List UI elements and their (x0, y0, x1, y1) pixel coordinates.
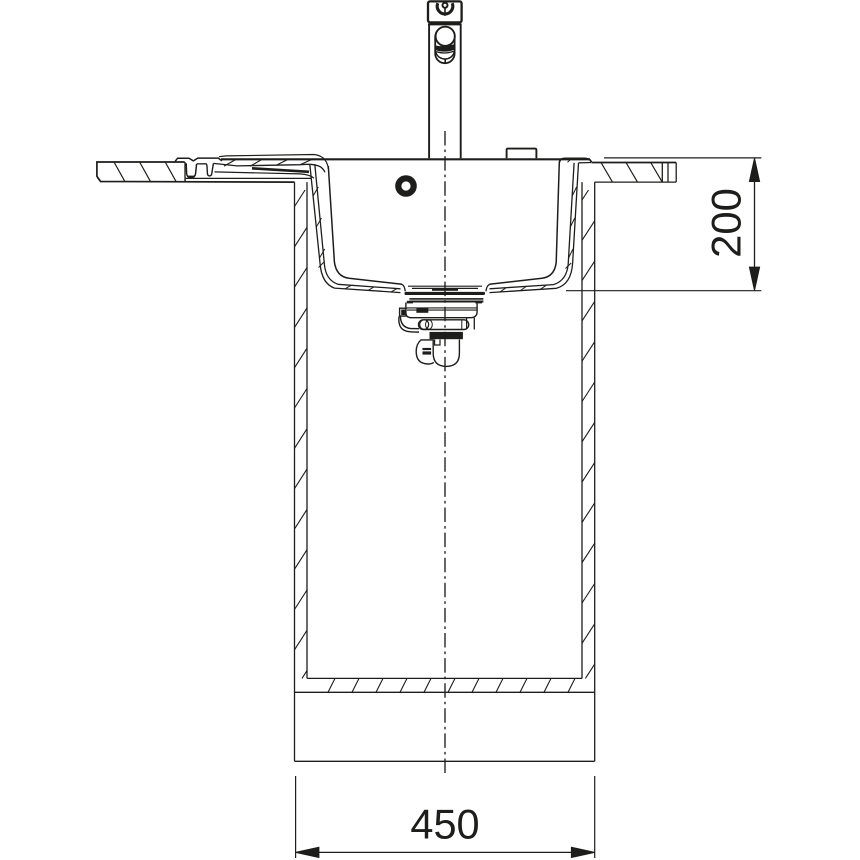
svg-text:200: 200 (703, 188, 750, 258)
svg-text:450: 450 (410, 800, 479, 847)
